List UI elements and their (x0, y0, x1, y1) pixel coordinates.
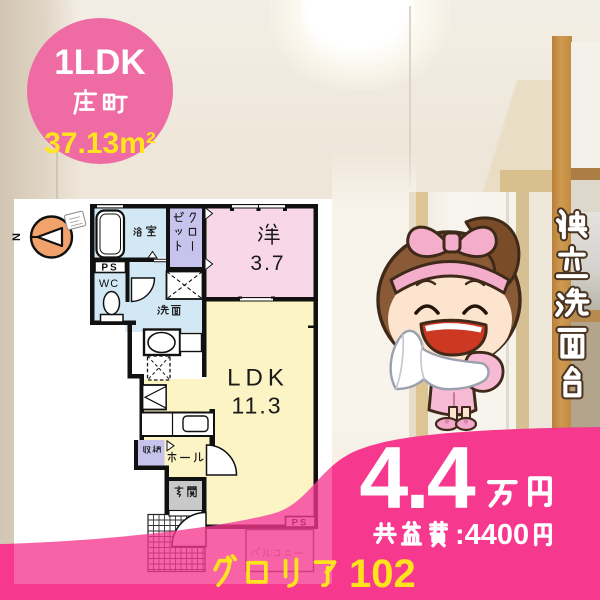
svg-text:102: 102 (349, 552, 416, 596)
svg-text:LDK: LDK (227, 365, 289, 392)
svg-text:PS: PS (101, 263, 118, 274)
svg-text:1LDK: 1LDK (54, 43, 145, 82)
svg-text:N: N (11, 233, 23, 241)
svg-text:4.4: 4.4 (359, 428, 475, 527)
svg-text:WC: WC (99, 278, 119, 290)
svg-text::4400: :4400 (455, 519, 529, 551)
svg-text:37.13m²: 37.13m² (44, 127, 156, 160)
svg-text:3.7: 3.7 (250, 252, 285, 275)
svg-text:11.3: 11.3 (231, 393, 282, 419)
